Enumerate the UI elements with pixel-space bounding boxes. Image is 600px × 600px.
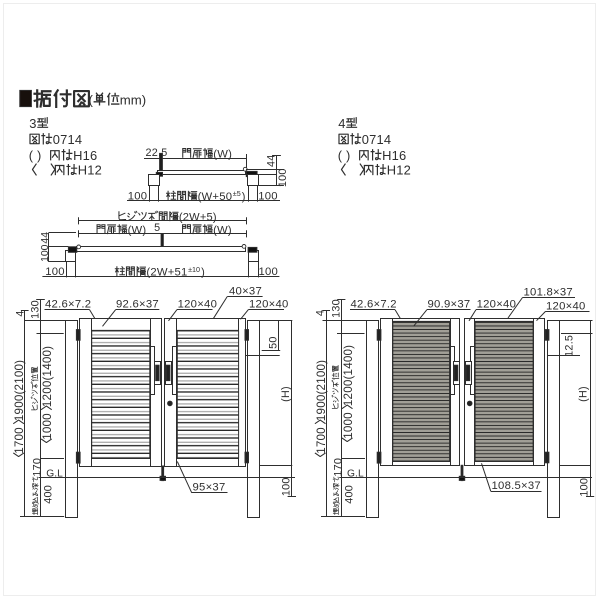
svg-text:44: 44 [266,154,278,167]
svg-text:(2W+51: (2W+51 [146,267,187,279]
svg-text:±10: ±10 [188,265,200,274]
svg-text:1700: 1700 [315,427,328,454]
svg-text:42.6×7.2: 42.6×7.2 [45,299,91,311]
svg-text:め: め [31,501,40,509]
svg-text:1200(1400): 1200(1400) [41,346,54,407]
svg-text:100: 100 [277,168,289,187]
svg-text:92.6×37: 92.6×37 [116,299,159,311]
svg-text:400: 400 [43,485,55,504]
svg-text:42.6×7.2: 42.6×7.2 [351,299,397,311]
svg-text:130: 130 [330,299,342,318]
svg-text:(W): (W) [128,225,147,237]
svg-text:22.5: 22.5 [145,147,167,159]
svg-text:H16: H16 [382,148,406,163]
svg-text:(H): (H) [577,386,589,402]
svg-text:H12: H12 [78,163,102,178]
svg-text:100: 100 [258,191,278,203]
svg-text:(W): (W) [213,225,232,237]
svg-text:(W): (W) [213,148,232,160]
svg-text:90.9×37: 90.9×37 [428,299,471,311]
svg-text:12.5: 12.5 [564,335,576,357]
svg-text:1900(2100): 1900(2100) [315,360,328,421]
svg-text:1200(1400): 1200(1400) [342,345,355,406]
svg-text:め: め [332,501,341,509]
svg-text:(2W+5): (2W+5) [179,212,217,224]
svg-text:130: 130 [29,300,41,319]
svg-text:100: 100 [128,191,148,203]
svg-text:100: 100 [280,477,292,496]
svg-text:1000: 1000 [342,412,355,439]
svg-text:): ) [242,191,246,203]
svg-text:( ): ( ) [29,148,42,163]
svg-text:): ) [201,267,205,279]
svg-text:0714: 0714 [362,132,391,147]
svg-text:3: 3 [29,116,36,131]
svg-text:(W+50: (W+50 [198,191,233,203]
svg-text:101.8×37: 101.8×37 [524,286,573,298]
svg-text:(H): (H) [280,386,292,402]
svg-text:4: 4 [14,310,26,316]
svg-text:( ): ( ) [338,148,351,163]
svg-text:120×40: 120×40 [477,299,517,311]
svg-text:100: 100 [578,478,590,497]
svg-text:100: 100 [40,244,51,262]
svg-text:170: 170 [333,458,345,477]
svg-text:H16: H16 [73,148,97,163]
svg-text:170: 170 [32,458,44,477]
svg-text:4: 4 [314,310,326,316]
svg-text:100: 100 [45,266,65,278]
svg-text:44: 44 [40,232,51,244]
svg-text:±5: ±5 [233,189,241,198]
svg-text:50: 50 [268,336,280,349]
svg-text:4: 4 [338,116,345,131]
svg-text:1000: 1000 [41,413,54,440]
svg-text:95×37: 95×37 [193,482,226,494]
svg-text:40×37: 40×37 [229,286,262,298]
svg-text:108.5×37: 108.5×37 [492,480,541,492]
svg-text:mm): mm) [120,93,146,108]
svg-text:120×40: 120×40 [546,300,586,312]
svg-text:1900(2100): 1900(2100) [13,360,26,421]
svg-text:120×40: 120×40 [178,299,218,311]
svg-text:0714: 0714 [53,132,82,147]
svg-text:H12: H12 [387,163,411,178]
svg-text:5: 5 [154,222,160,234]
svg-text:1700: 1700 [13,427,26,454]
svg-text:400: 400 [344,485,356,504]
svg-text:120×40: 120×40 [249,299,289,311]
svg-text:(: ( [89,93,94,108]
svg-text:100: 100 [258,266,278,278]
